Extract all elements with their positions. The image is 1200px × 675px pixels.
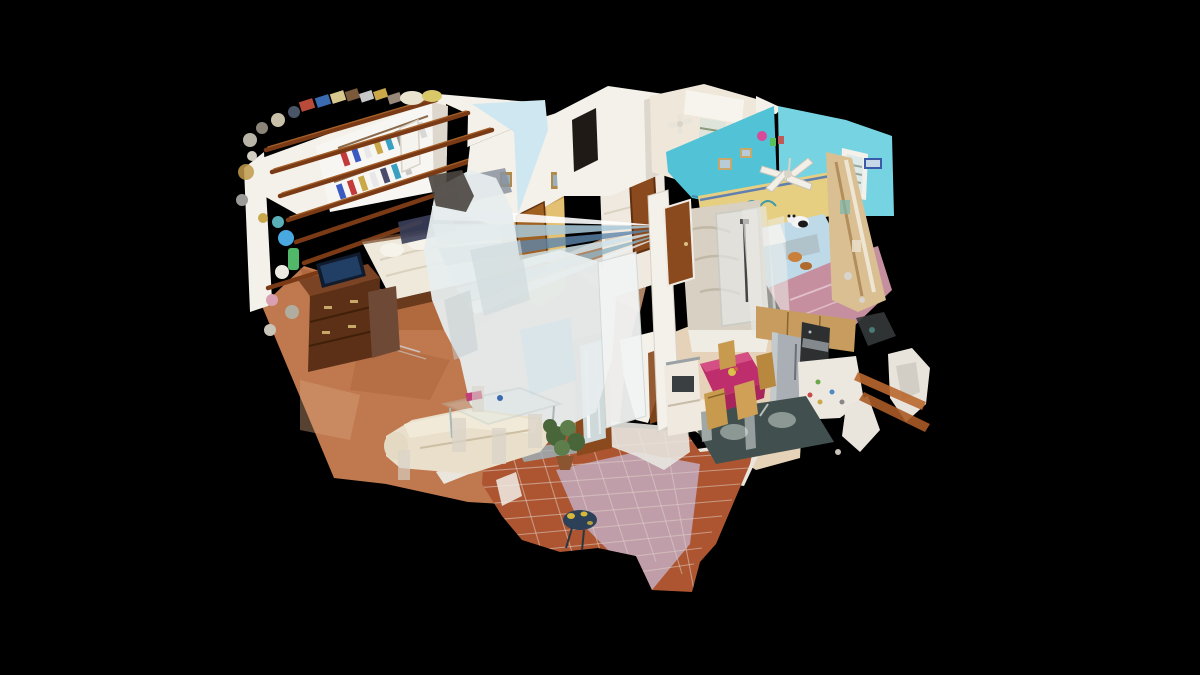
trolley	[664, 358, 702, 436]
dollhouse-canvas	[0, 0, 1200, 675]
dollhouse-viewport[interactable]	[0, 0, 1200, 675]
bathroom-door	[664, 200, 694, 286]
armchair	[368, 286, 400, 358]
